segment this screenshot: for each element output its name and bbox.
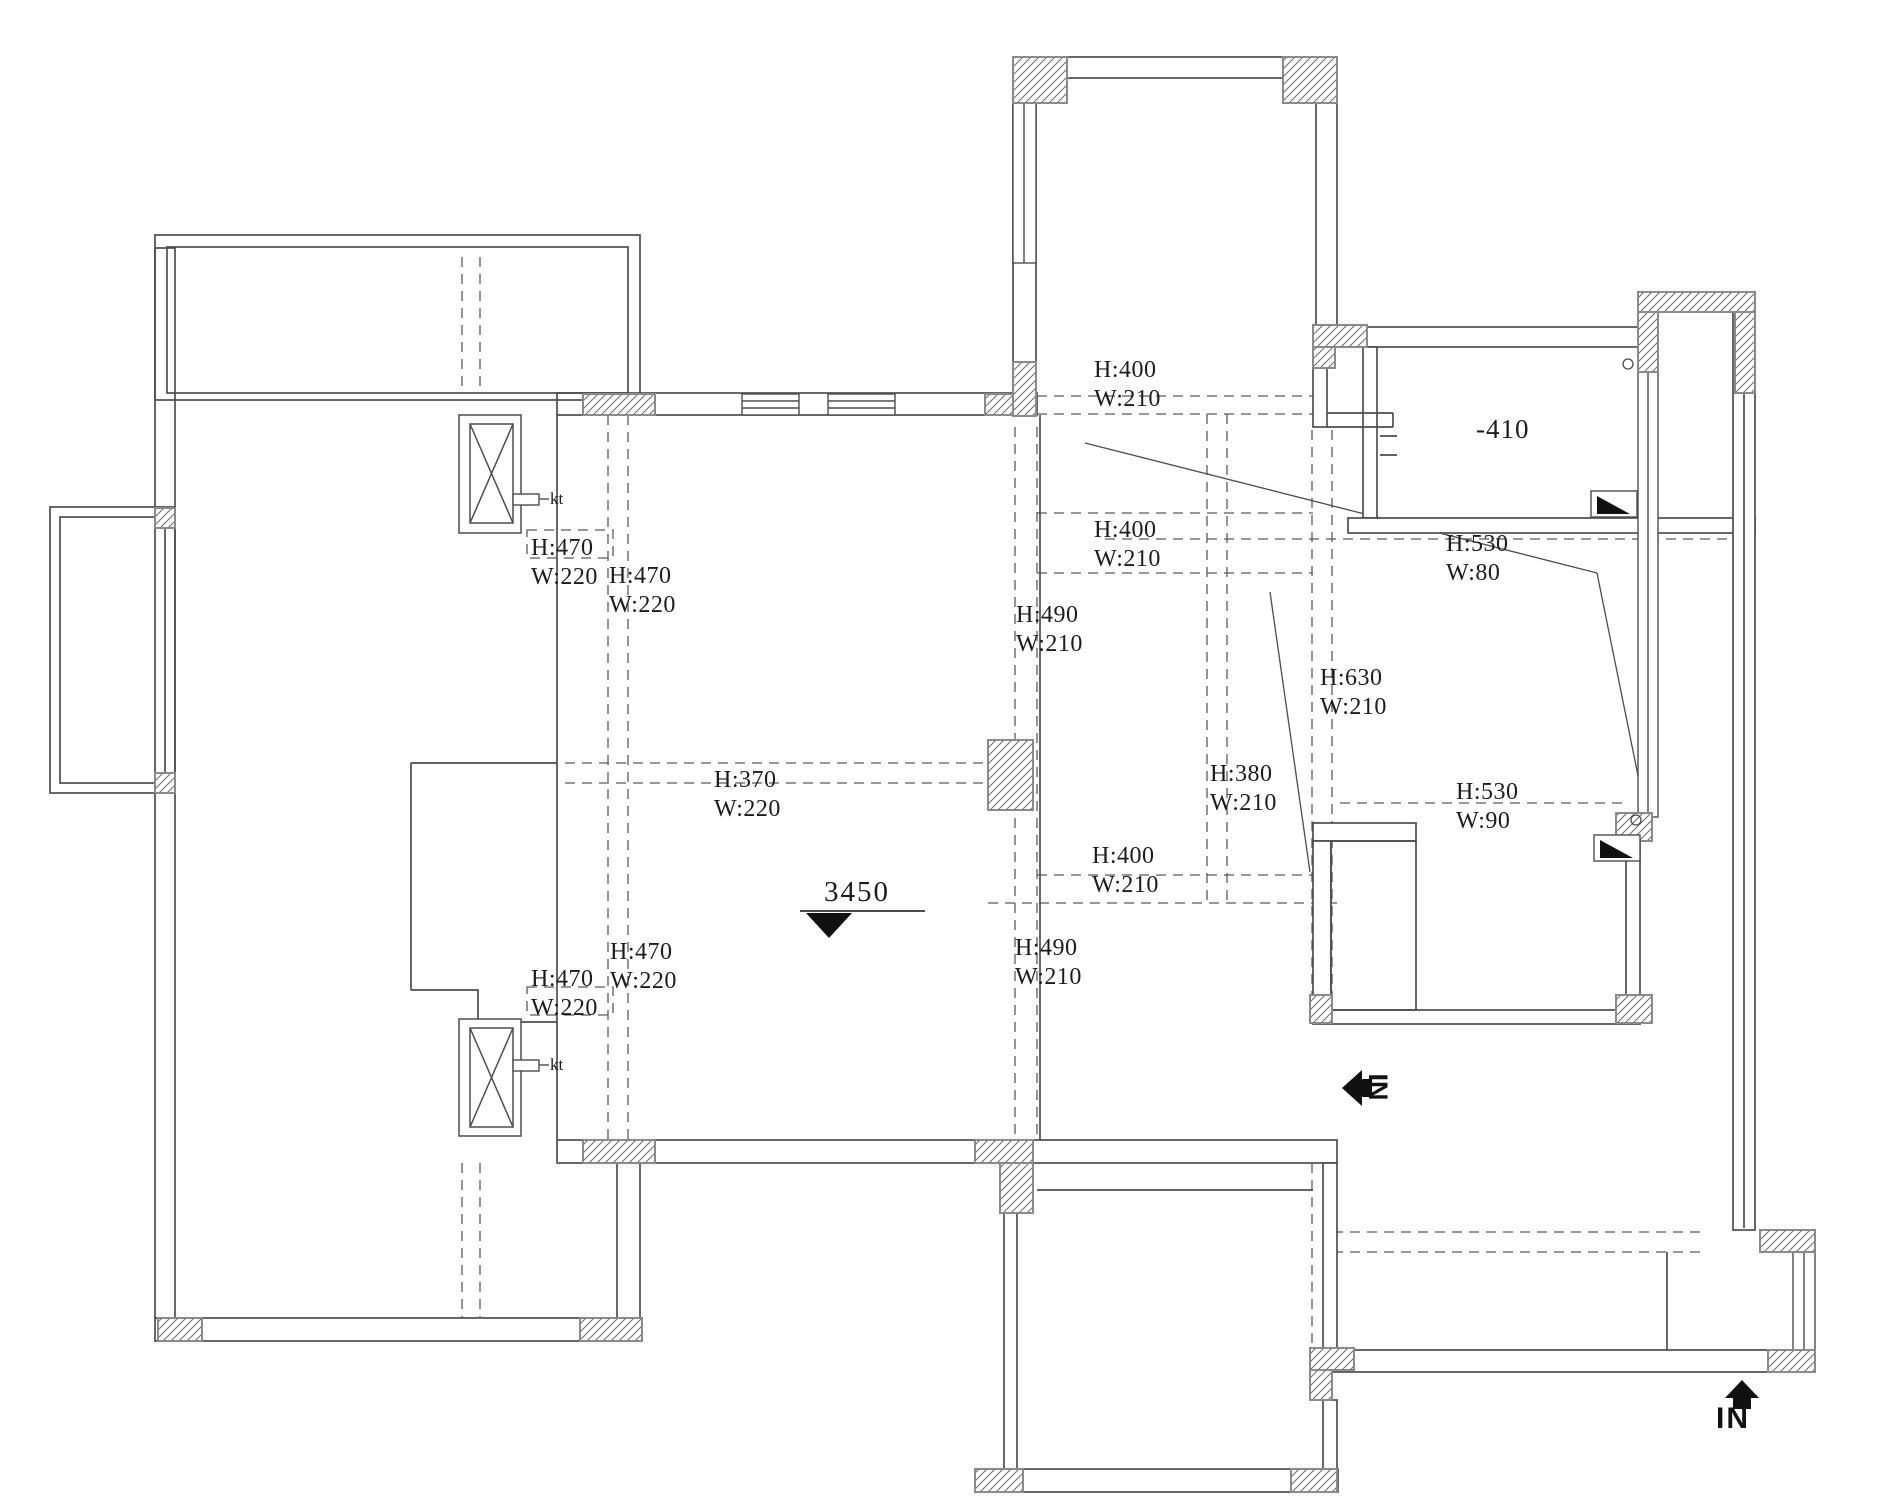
dim-height: H:490 <box>1015 934 1082 963</box>
dim-height: H:470 <box>531 965 598 994</box>
dim-height: H:400 <box>1094 516 1161 545</box>
dim-label-kitchen-upper: H:400 W:210 <box>1094 516 1161 574</box>
dim-height: H:380 <box>1210 760 1277 789</box>
dim-width: W:210 <box>1092 871 1159 900</box>
dim-height: H:470 <box>610 938 677 967</box>
wall-outlines <box>50 57 1815 1492</box>
structural-columns <box>155 57 1815 1492</box>
dim-width: W:220 <box>714 795 781 824</box>
dim-width: W:220 <box>531 994 598 1023</box>
dim-width: W:90 <box>1456 807 1519 836</box>
dim-label-bedroom-right: H:630 W:210 <box>1320 664 1387 722</box>
dim-width: W:210 <box>1094 545 1161 574</box>
dim-label-hall-right: H:530 W:80 <box>1446 530 1509 588</box>
dim-width: W:80 <box>1446 559 1509 588</box>
dim-label-dining-upper: H:490 W:210 <box>1016 601 1083 659</box>
dim-width: W:210 <box>1016 630 1083 659</box>
ceiling-elevation-value: 3450 <box>824 876 890 909</box>
floor-plan-canvas: H:400 W:210 H:400 W:210 H:490 W:210 H:53… <box>0 0 1890 1512</box>
dim-label-living-left-lower-outer: H:470 W:220 <box>531 965 598 1023</box>
side-entry-label: IN <box>1363 1069 1393 1105</box>
dim-label-bath-right: H:530 W:90 <box>1456 778 1519 836</box>
dim-width: W:220 <box>609 591 676 620</box>
dim-height: H:490 <box>1016 601 1083 630</box>
dim-width: W:210 <box>1094 385 1161 414</box>
elevation-marker <box>800 911 925 938</box>
dim-height: H:370 <box>714 766 781 795</box>
elevation-triangle-icon <box>806 913 852 938</box>
dashed-ceiling-lines <box>462 257 1730 1348</box>
dim-height: H:630 <box>1320 664 1387 693</box>
dim-height: H:400 <box>1094 356 1161 385</box>
elevator-shafts <box>459 415 521 1136</box>
dim-width: W:220 <box>610 967 677 996</box>
dim-height: H:530 <box>1456 778 1519 807</box>
dim-label-dining-lower: H:490 W:210 <box>1015 934 1082 992</box>
dim-label-dining-mid: H:400 W:210 <box>1092 842 1159 900</box>
dim-label-kitchen-top: H:400 W:210 <box>1094 356 1161 414</box>
dim-label-dining-right: H:380 W:210 <box>1210 760 1277 818</box>
bottom-entry-label: IN <box>1716 1402 1750 1436</box>
dim-height: H:470 <box>609 562 676 591</box>
door-symbols <box>1591 491 1640 861</box>
dim-width: W:210 <box>1015 963 1082 992</box>
dim-width: W:210 <box>1320 693 1387 722</box>
ac-outlet-label: kt <box>550 1055 563 1075</box>
dim-height: H:470 <box>531 534 598 563</box>
dim-width: W:210 <box>1210 789 1277 818</box>
ac-outlet-label: kt <box>550 489 563 509</box>
dim-label-living-center: H:370 W:220 <box>714 766 781 824</box>
dim-label-living-left-upper-outer: H:470 W:220 <box>531 534 598 592</box>
dim-height: H:530 <box>1446 530 1509 559</box>
dim-label-living-left-upper-inner: H:470 W:220 <box>609 562 676 620</box>
dim-label-living-left-lower-inner: H:470 W:220 <box>610 938 677 996</box>
dim-width: W:220 <box>531 563 598 592</box>
floor-level-value: -410 <box>1476 414 1530 445</box>
dim-height: H:400 <box>1092 842 1159 871</box>
floor-plan-linework <box>0 0 1890 1512</box>
